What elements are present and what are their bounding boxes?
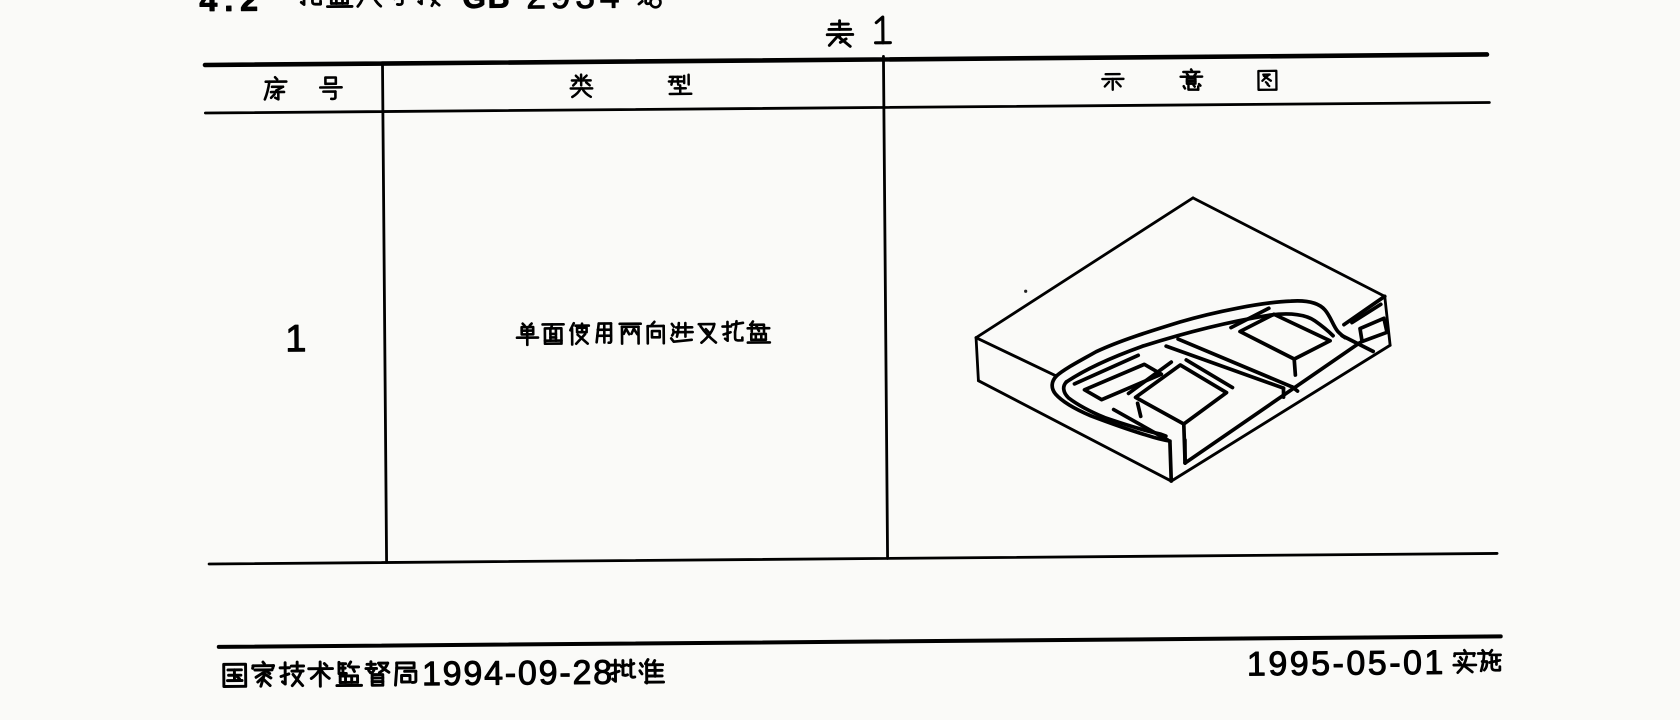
svg-text:1995-05-01: 1995-05-01 xyxy=(1247,644,1446,684)
svg-text:4.2: 4.2 xyxy=(199,0,265,18)
svg-text:1: 1 xyxy=(285,318,306,360)
svg-text:GB: GB xyxy=(462,0,511,15)
svg-text:1994-09-28: 1994-09-28 xyxy=(422,654,614,694)
svg-text:2934: 2934 xyxy=(526,0,624,16)
